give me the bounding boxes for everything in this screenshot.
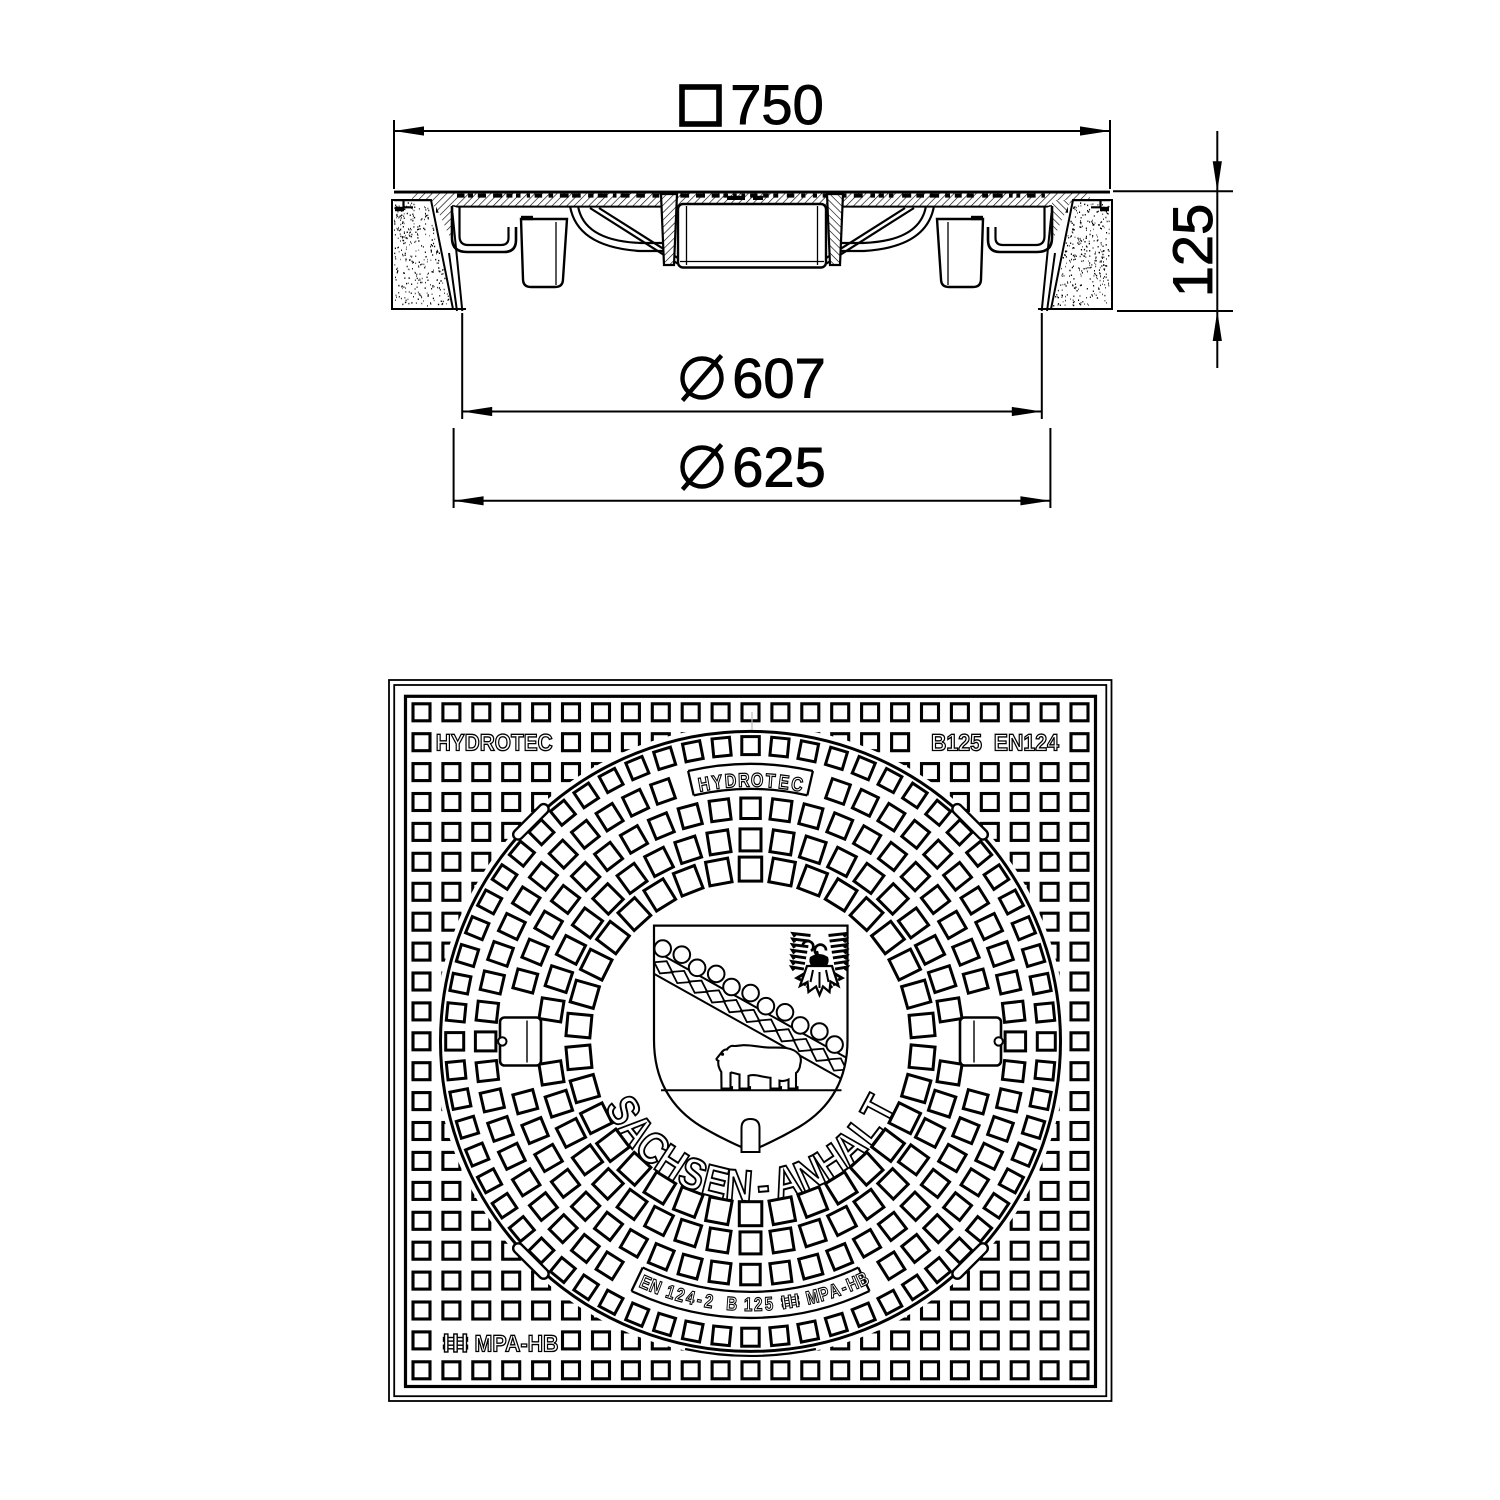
svg-text:B125 EN124: B125 EN124: [931, 730, 1059, 756]
svg-text:625: 625: [732, 436, 825, 499]
svg-text:607: 607: [732, 347, 825, 410]
svg-text:1: 1: [744, 1295, 753, 1316]
svg-text:MPA-HB: MPA-HB: [475, 1331, 559, 1357]
svg-text:HYDROTEC: HYDROTEC: [436, 730, 553, 756]
svg-text:D: D: [724, 770, 737, 793]
svg-text:R: R: [738, 770, 750, 792]
svg-text:T: T: [765, 770, 776, 793]
svg-text:O: O: [751, 770, 764, 792]
svg-text:750: 750: [730, 73, 823, 136]
svg-text:B: B: [725, 1294, 737, 1316]
svg-text:N: N: [724, 1160, 755, 1211]
svg-text:125: 125: [1161, 204, 1224, 297]
svg-text:2: 2: [754, 1295, 763, 1316]
